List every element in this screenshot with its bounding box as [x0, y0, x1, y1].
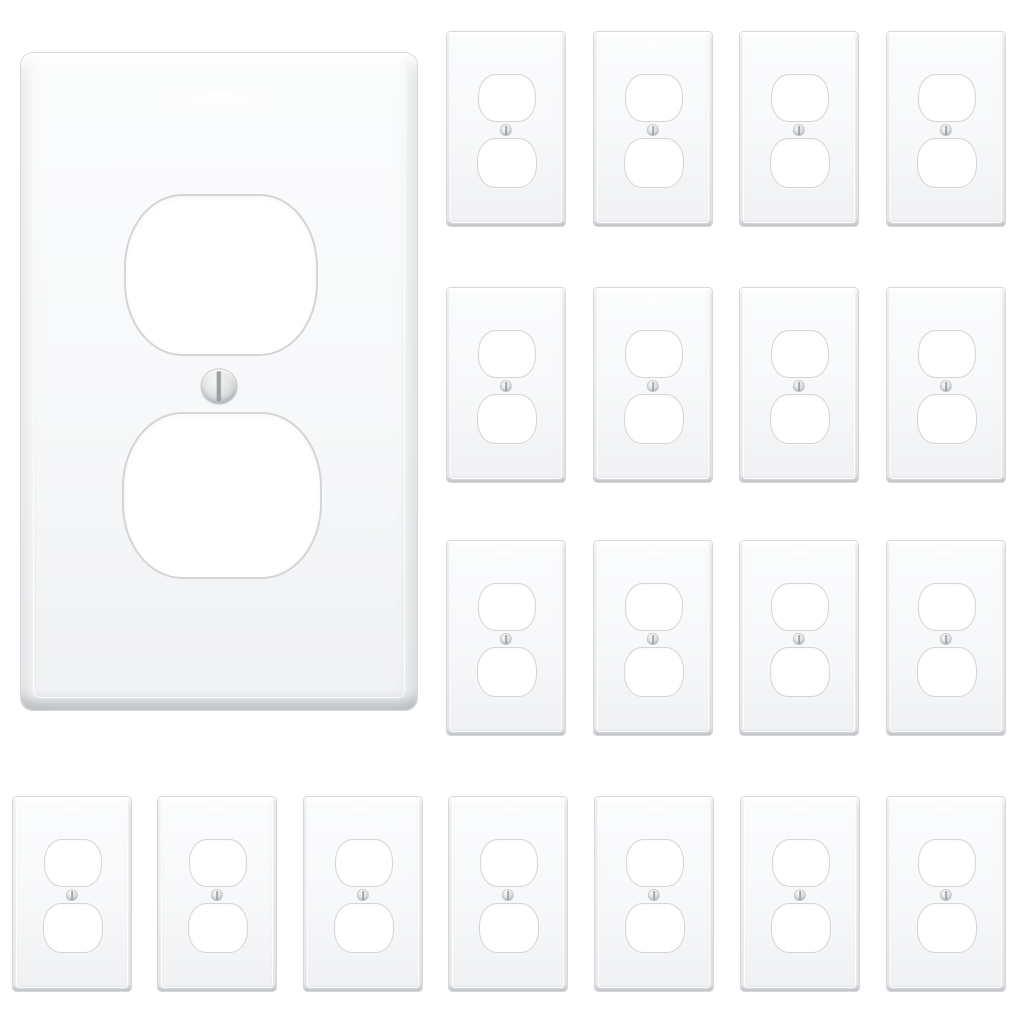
screw-icon [941, 381, 951, 391]
screw-slot [945, 126, 946, 135]
outlet-cutout-bottom [624, 394, 685, 444]
screw-slot [798, 126, 799, 135]
bottom-row-wall-plate [595, 797, 713, 991]
bottom-row-wall-plate [741, 797, 859, 991]
outlet-cutout-top [918, 74, 977, 123]
product-image [0, 0, 1024, 1024]
bottom-row-wall-plate [158, 797, 276, 991]
screw-slot [799, 891, 800, 900]
screw-slot [652, 382, 653, 391]
screw-icon [648, 381, 658, 391]
screw-slot [652, 635, 653, 644]
grid-wall-plate [447, 541, 565, 735]
screw-icon [202, 369, 237, 403]
grid-wall-plate [740, 541, 858, 735]
screw-slot [362, 891, 363, 900]
outlet-cutout-top [771, 330, 830, 379]
bottom-row-wall-plate [304, 797, 422, 991]
outlet-cutout-bottom [477, 394, 538, 444]
screw-slot [505, 382, 506, 391]
grid-wall-plate [447, 32, 565, 226]
outlet-cutout-top [189, 839, 248, 888]
outlet-cutout-top [478, 583, 537, 632]
outlet-cutout-top [478, 74, 537, 123]
screw-icon [501, 381, 511, 391]
outlet-cutout-bottom [477, 647, 538, 697]
grid-wall-plate [594, 541, 712, 735]
outlet-cutout-top [335, 839, 394, 888]
grid-wall-plate [740, 288, 858, 482]
screw-slot [505, 635, 506, 644]
screw-icon [941, 634, 951, 644]
outlet-cutout-bottom [43, 903, 104, 953]
outlet-cutout-bottom [625, 903, 686, 953]
outlet-cutout-top [918, 839, 977, 888]
screw-icon [941, 125, 951, 135]
outlet-cutout-top [478, 330, 537, 379]
screw-icon [941, 890, 951, 900]
outlet-cutout-bottom [477, 138, 538, 188]
grid-wall-plate [887, 288, 1005, 482]
outlet-cutout-top [44, 839, 103, 888]
screw-icon [67, 890, 77, 900]
outlet-cutout-bottom [122, 412, 322, 579]
outlet-cutout-bottom [479, 903, 540, 953]
grid-wall-plate [447, 288, 565, 482]
screw-slot [652, 126, 653, 135]
outlet-cutout-bottom [770, 394, 831, 444]
screw-slot [71, 891, 72, 900]
screw-icon [794, 381, 804, 391]
outlet-cutout-top [918, 330, 977, 379]
screw-slot [798, 635, 799, 644]
outlet-cutout-top [124, 194, 318, 356]
outlet-cutout-bottom [188, 903, 249, 953]
screw-icon [648, 125, 658, 135]
screw-slot [798, 382, 799, 391]
hero-wall-plate [21, 53, 417, 710]
screw-icon [501, 125, 511, 135]
screw-slot [507, 891, 508, 900]
grid-wall-plate [594, 288, 712, 482]
outlet-cutout-top [772, 839, 831, 888]
outlet-cutout-top [625, 583, 684, 632]
outlet-cutout-top [771, 583, 830, 632]
outlet-cutout-top [626, 839, 685, 888]
grid-wall-plate [887, 541, 1005, 735]
outlet-cutout-bottom [917, 394, 978, 444]
screw-slot [216, 891, 217, 900]
outlet-cutout-bottom [770, 647, 831, 697]
screw-slot [505, 126, 506, 135]
screw-slot [945, 635, 946, 644]
outlet-cutout-bottom [917, 647, 978, 697]
screw-icon [795, 890, 805, 900]
screw-icon [212, 890, 222, 900]
screw-slot [945, 382, 946, 391]
bottom-row-wall-plate [13, 797, 131, 991]
screw-slot [945, 891, 946, 900]
screw-slot [653, 891, 654, 900]
grid-wall-plate [740, 32, 858, 226]
outlet-cutout-top [918, 583, 977, 632]
outlet-cutout-bottom [917, 138, 978, 188]
screw-icon [503, 890, 513, 900]
grid-wall-plate [594, 32, 712, 226]
grid-wall-plate [887, 32, 1005, 226]
screw-slot [217, 371, 222, 401]
outlet-cutout-top [480, 839, 539, 888]
screw-icon [794, 634, 804, 644]
screw-icon [649, 890, 659, 900]
outlet-cutout-bottom [770, 138, 831, 188]
outlet-cutout-bottom [624, 138, 685, 188]
screw-icon [501, 634, 511, 644]
outlet-cutout-top [771, 74, 830, 123]
screw-icon [648, 634, 658, 644]
outlet-cutout-bottom [334, 903, 395, 953]
outlet-cutout-top [625, 74, 684, 123]
bottom-row-wall-plate [887, 797, 1005, 991]
screw-icon [358, 890, 368, 900]
outlet-cutout-bottom [771, 903, 832, 953]
bottom-row-wall-plate [449, 797, 567, 991]
screw-icon [794, 125, 804, 135]
outlet-cutout-top [625, 330, 684, 379]
outlet-cutout-bottom [624, 647, 685, 697]
outlet-cutout-bottom [917, 903, 978, 953]
